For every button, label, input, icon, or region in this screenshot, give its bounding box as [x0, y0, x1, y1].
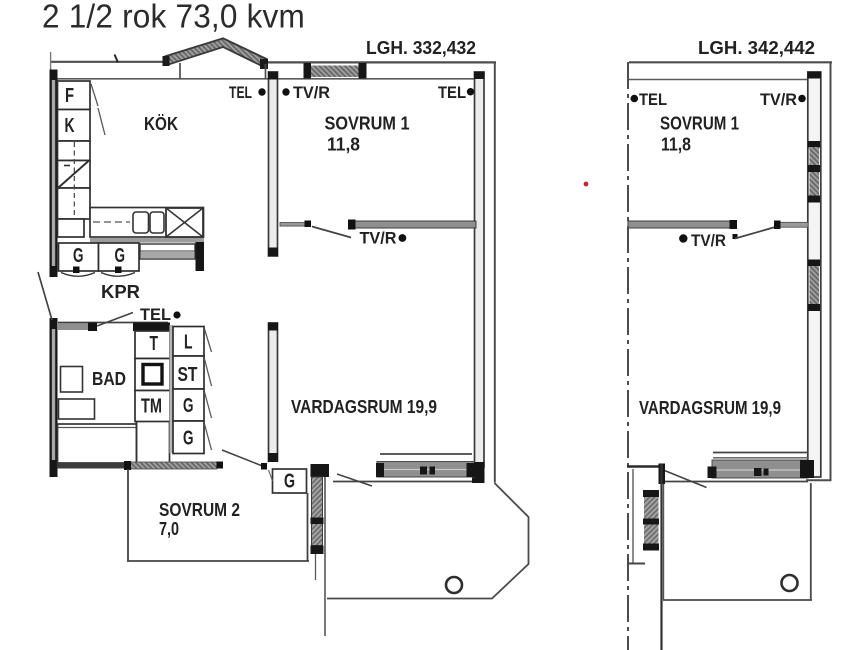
svg-text:SOVRUM 1: SOVRUM 1	[660, 113, 739, 134]
svg-text:G: G	[284, 471, 295, 493]
svg-text:TEL: TEL	[639, 90, 667, 109]
svg-text:ST: ST	[178, 364, 198, 386]
svg-text:VARDAGSRUM 19,9: VARDAGSRUM 19,9	[291, 396, 437, 417]
svg-text:L: L	[184, 332, 193, 354]
svg-text:K: K	[65, 115, 75, 137]
svg-text:SOVRUM 1: SOVRUM 1	[325, 113, 410, 134]
svg-text:TV/R: TV/R	[691, 231, 726, 250]
svg-text:2 1/2 rok 73,0 kvm: 2 1/2 rok 73,0 kvm	[42, 0, 305, 35]
svg-text:TEL: TEL	[140, 305, 171, 324]
svg-text:TEL: TEL	[229, 83, 252, 102]
svg-text:KPR: KPR	[101, 281, 140, 302]
svg-text:11,8: 11,8	[327, 134, 360, 155]
svg-text:G: G	[183, 395, 194, 417]
svg-text:TEL: TEL	[438, 83, 466, 102]
svg-text:TV/R: TV/R	[293, 83, 330, 102]
svg-text:G: G	[183, 428, 194, 450]
svg-text:G: G	[115, 245, 126, 267]
svg-text:T: T	[150, 333, 159, 355]
svg-text:11,8: 11,8	[661, 134, 691, 155]
svg-text:G: G	[73, 245, 84, 267]
svg-text:TV/R: TV/R	[760, 90, 797, 109]
svg-text:SOVRUM 2: SOVRUM 2	[159, 499, 240, 520]
svg-text:KÖK: KÖK	[144, 113, 179, 134]
svg-text:VARDAGSRUM 19,9: VARDAGSRUM 19,9	[639, 397, 781, 418]
svg-text:BAD: BAD	[92, 368, 126, 389]
svg-text:F: F	[65, 85, 74, 107]
svg-text:TV/R: TV/R	[360, 229, 397, 248]
svg-text:TM: TM	[141, 396, 162, 418]
svg-text:LGH. 342,442: LGH. 342,442	[698, 37, 815, 58]
svg-text:7,0: 7,0	[159, 518, 179, 539]
svg-text:LGH. 332,432: LGH. 332,432	[366, 37, 476, 58]
